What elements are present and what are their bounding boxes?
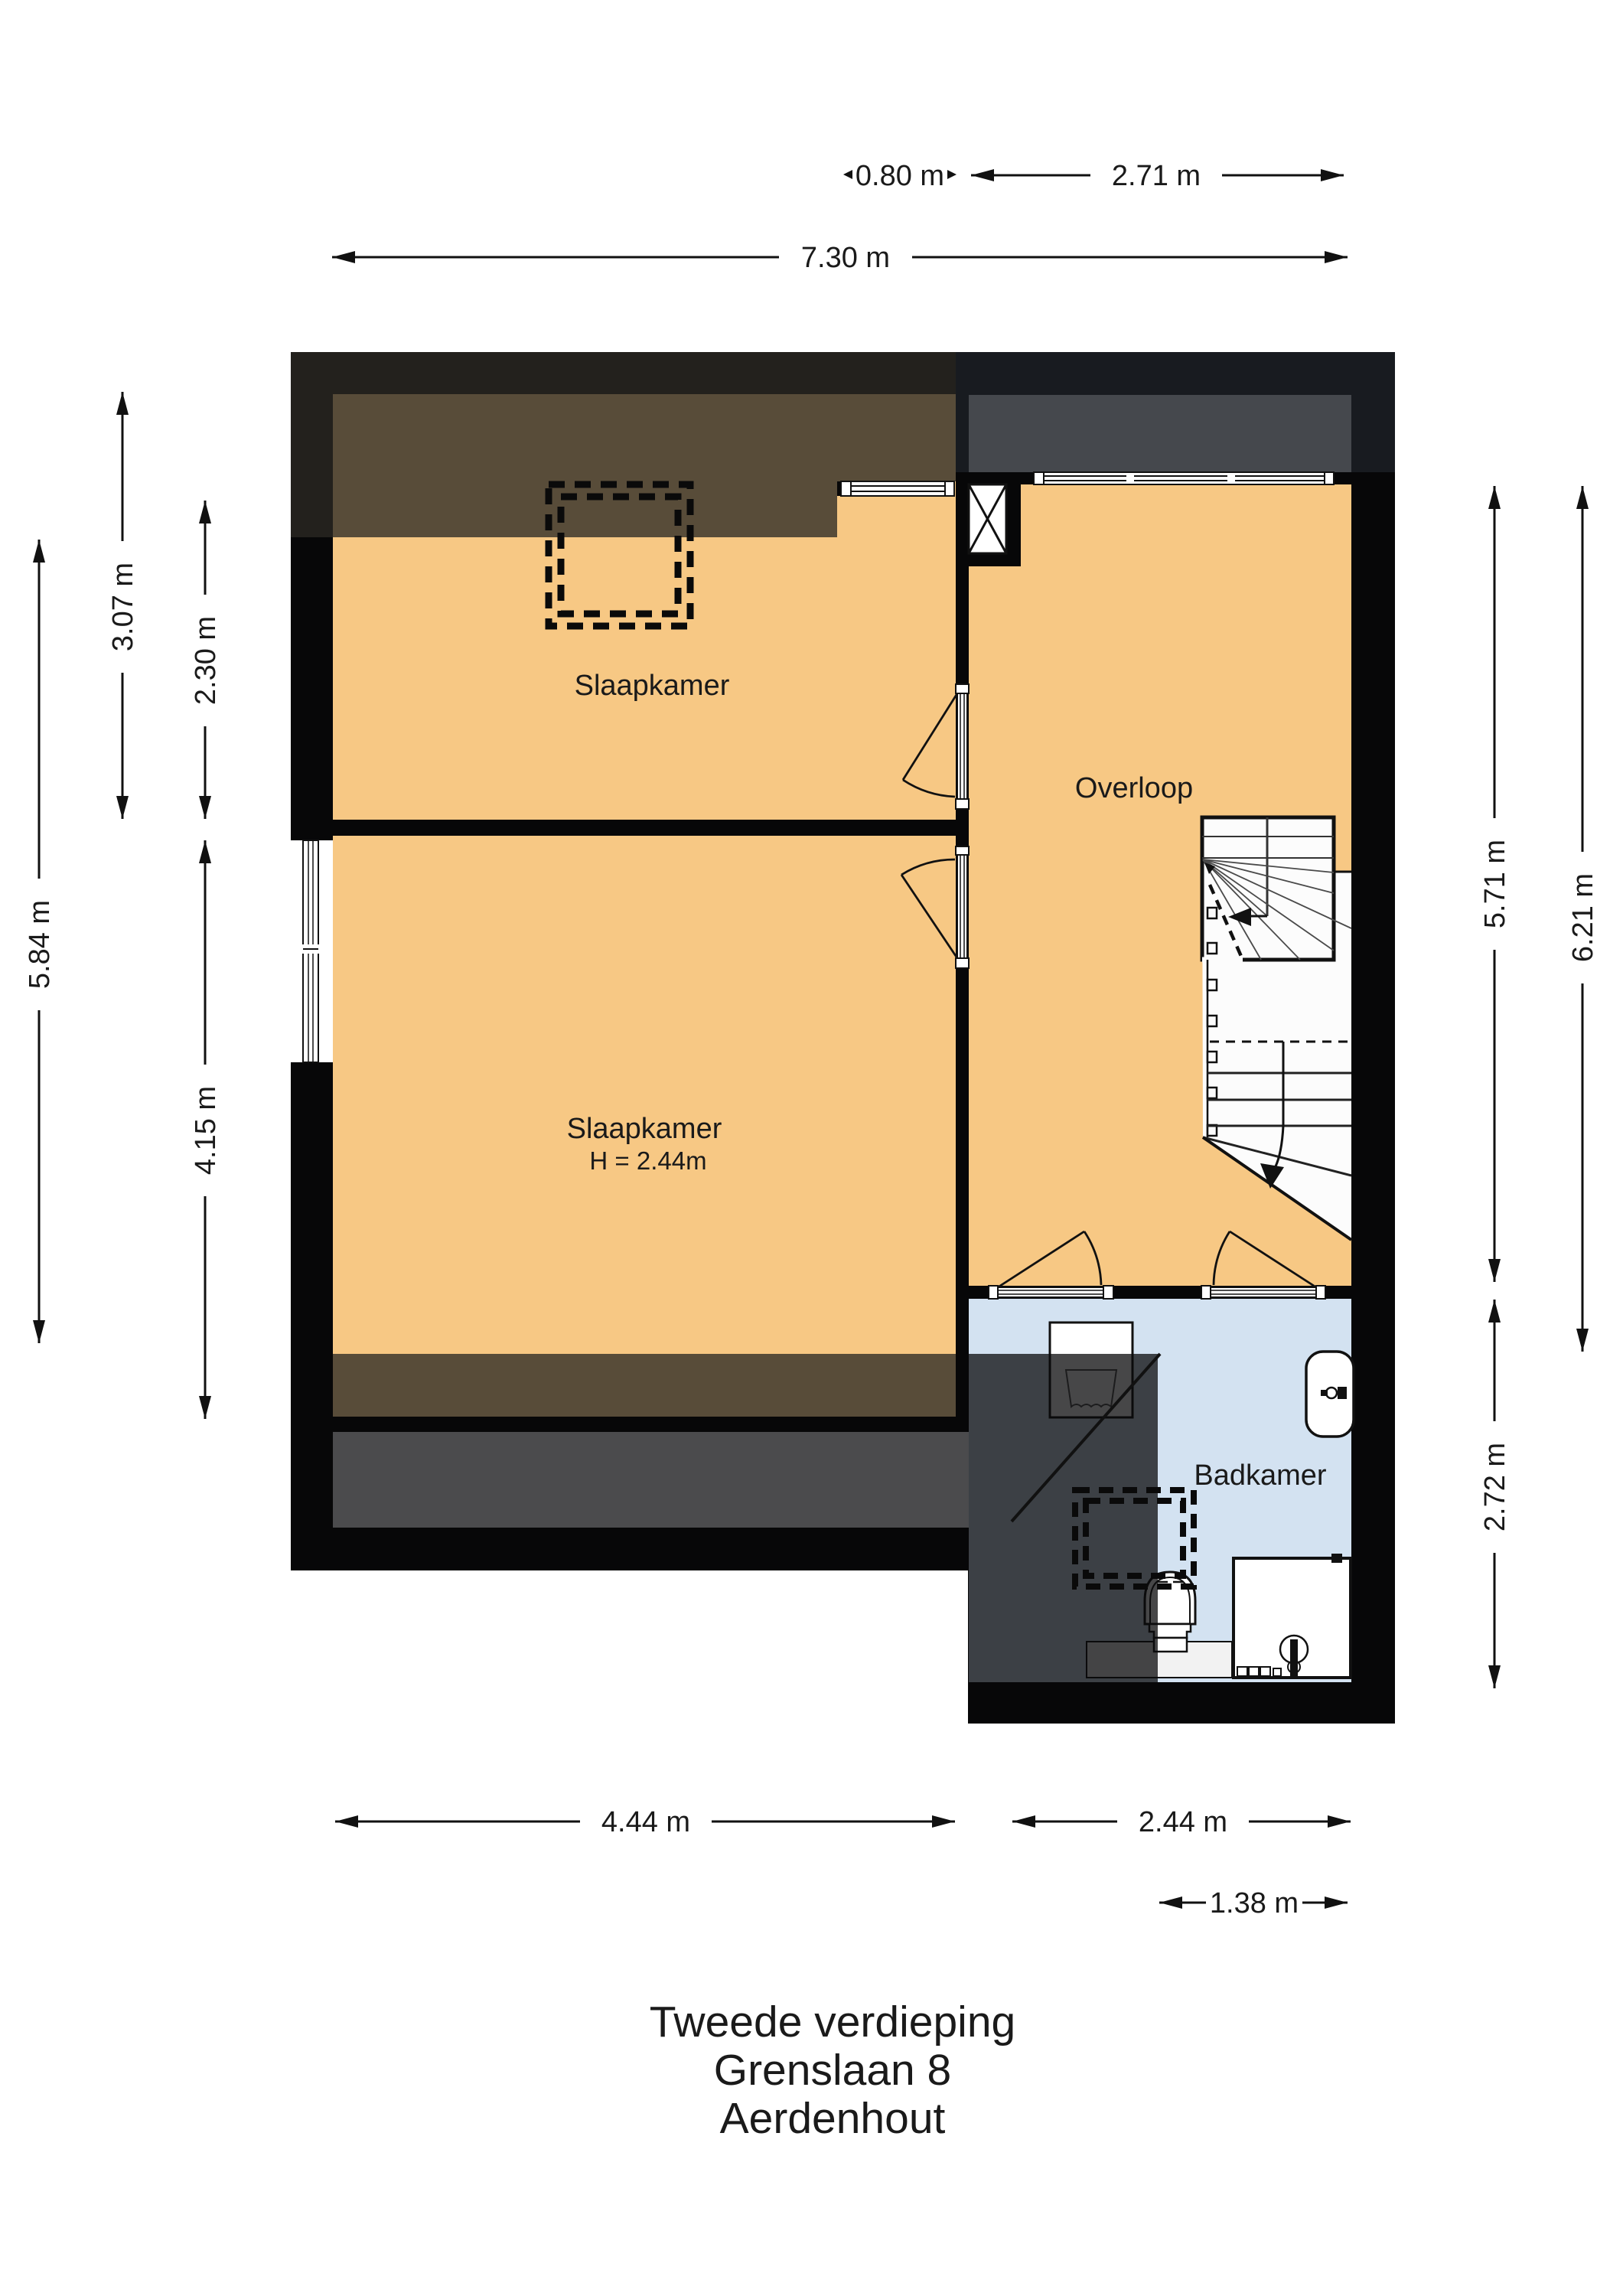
svg-text:Badkamer: Badkamer [1194,1459,1327,1492]
svg-text:2.44 m: 2.44 m [1139,1806,1227,1838]
svg-text:Slaapkamer: Slaapkamer [575,670,730,702]
svg-text:5.84 m: 5.84 m [24,900,56,989]
svg-text:Aerdenhout: Aerdenhout [720,2094,946,2143]
svg-text:5.71 m: 5.71 m [1479,840,1511,928]
svg-text:2.72 m: 2.72 m [1479,1443,1511,1531]
svg-text:Overloop: Overloop [1075,772,1193,804]
svg-text:0.80 m: 0.80 m [855,160,944,192]
svg-text:3.07 m: 3.07 m [107,563,139,651]
svg-text:Tweede verdieping: Tweede verdieping [650,1998,1016,2047]
svg-text:Slaapkamer: Slaapkamer [567,1113,722,1145]
svg-text:H = 2.44m: H = 2.44m [589,1146,706,1175]
svg-text:1.38 m: 1.38 m [1210,1887,1299,1919]
svg-text:2.30 m: 2.30 m [190,616,222,705]
svg-text:6.21 m: 6.21 m [1567,873,1599,962]
svg-text:7.30 m: 7.30 m [801,242,890,274]
svg-text:Grenslaan 8: Grenslaan 8 [714,2046,952,2095]
svg-text:4.15 m: 4.15 m [190,1086,222,1175]
svg-text:2.71 m: 2.71 m [1112,160,1201,192]
svg-text:4.44 m: 4.44 m [601,1806,690,1838]
